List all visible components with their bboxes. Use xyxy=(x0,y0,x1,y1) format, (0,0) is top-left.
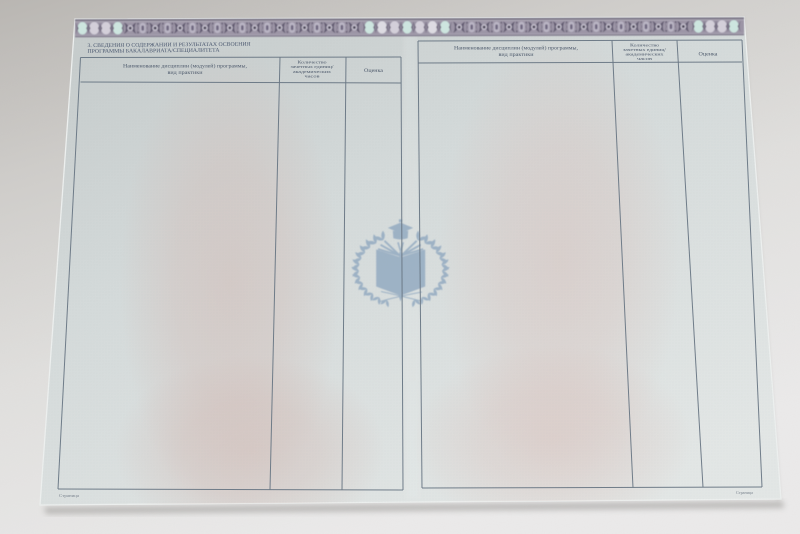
svg-text:Оценка: Оценка xyxy=(364,69,384,74)
svg-text:вид практики: вид практики xyxy=(499,53,534,58)
svg-text:ПРОГРАММЫ БАКАЛАВРИАТА/СПЕЦИАЛ: ПРОГРАММЫ БАКАЛАВРИАТА/СПЕЦИАЛИТЕТА xyxy=(87,48,219,55)
svg-text:Оценка: Оценка xyxy=(699,53,719,58)
svg-text:Страница: Страница xyxy=(59,493,79,498)
svg-text:часов: часов xyxy=(637,56,652,61)
svg-text:вид практики: вид практики xyxy=(168,71,203,76)
svg-text:Наименование дисциплин (модуле: Наименование дисциплин (модулей) програм… xyxy=(454,47,578,52)
svg-text:Страница: Страница xyxy=(736,490,753,495)
svg-text:Наименование дисциплин (модуле: Наименование дисциплин (модулей) програм… xyxy=(123,65,247,70)
svg-text:часов: часов xyxy=(305,74,320,79)
